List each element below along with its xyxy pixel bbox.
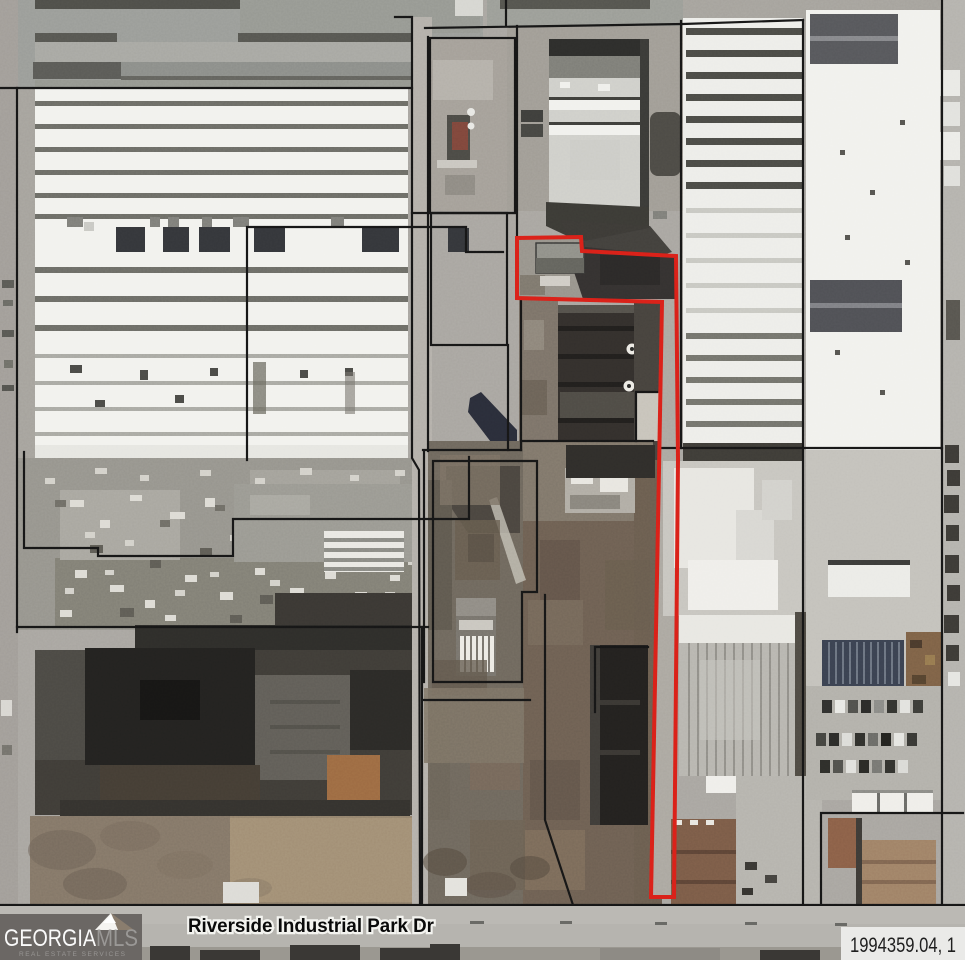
svg-text:REAL ESTATE SERVICES: REAL ESTATE SERVICES	[19, 951, 126, 958]
svg-text:MLS: MLS	[96, 925, 138, 952]
svg-text:Riverside Industrial Park Dr: Riverside Industrial Park Dr	[188, 915, 434, 937]
svg-text:GEORGIA: GEORGIA	[4, 925, 96, 952]
svg-text:1994359.04, 1: 1994359.04, 1	[850, 934, 956, 957]
